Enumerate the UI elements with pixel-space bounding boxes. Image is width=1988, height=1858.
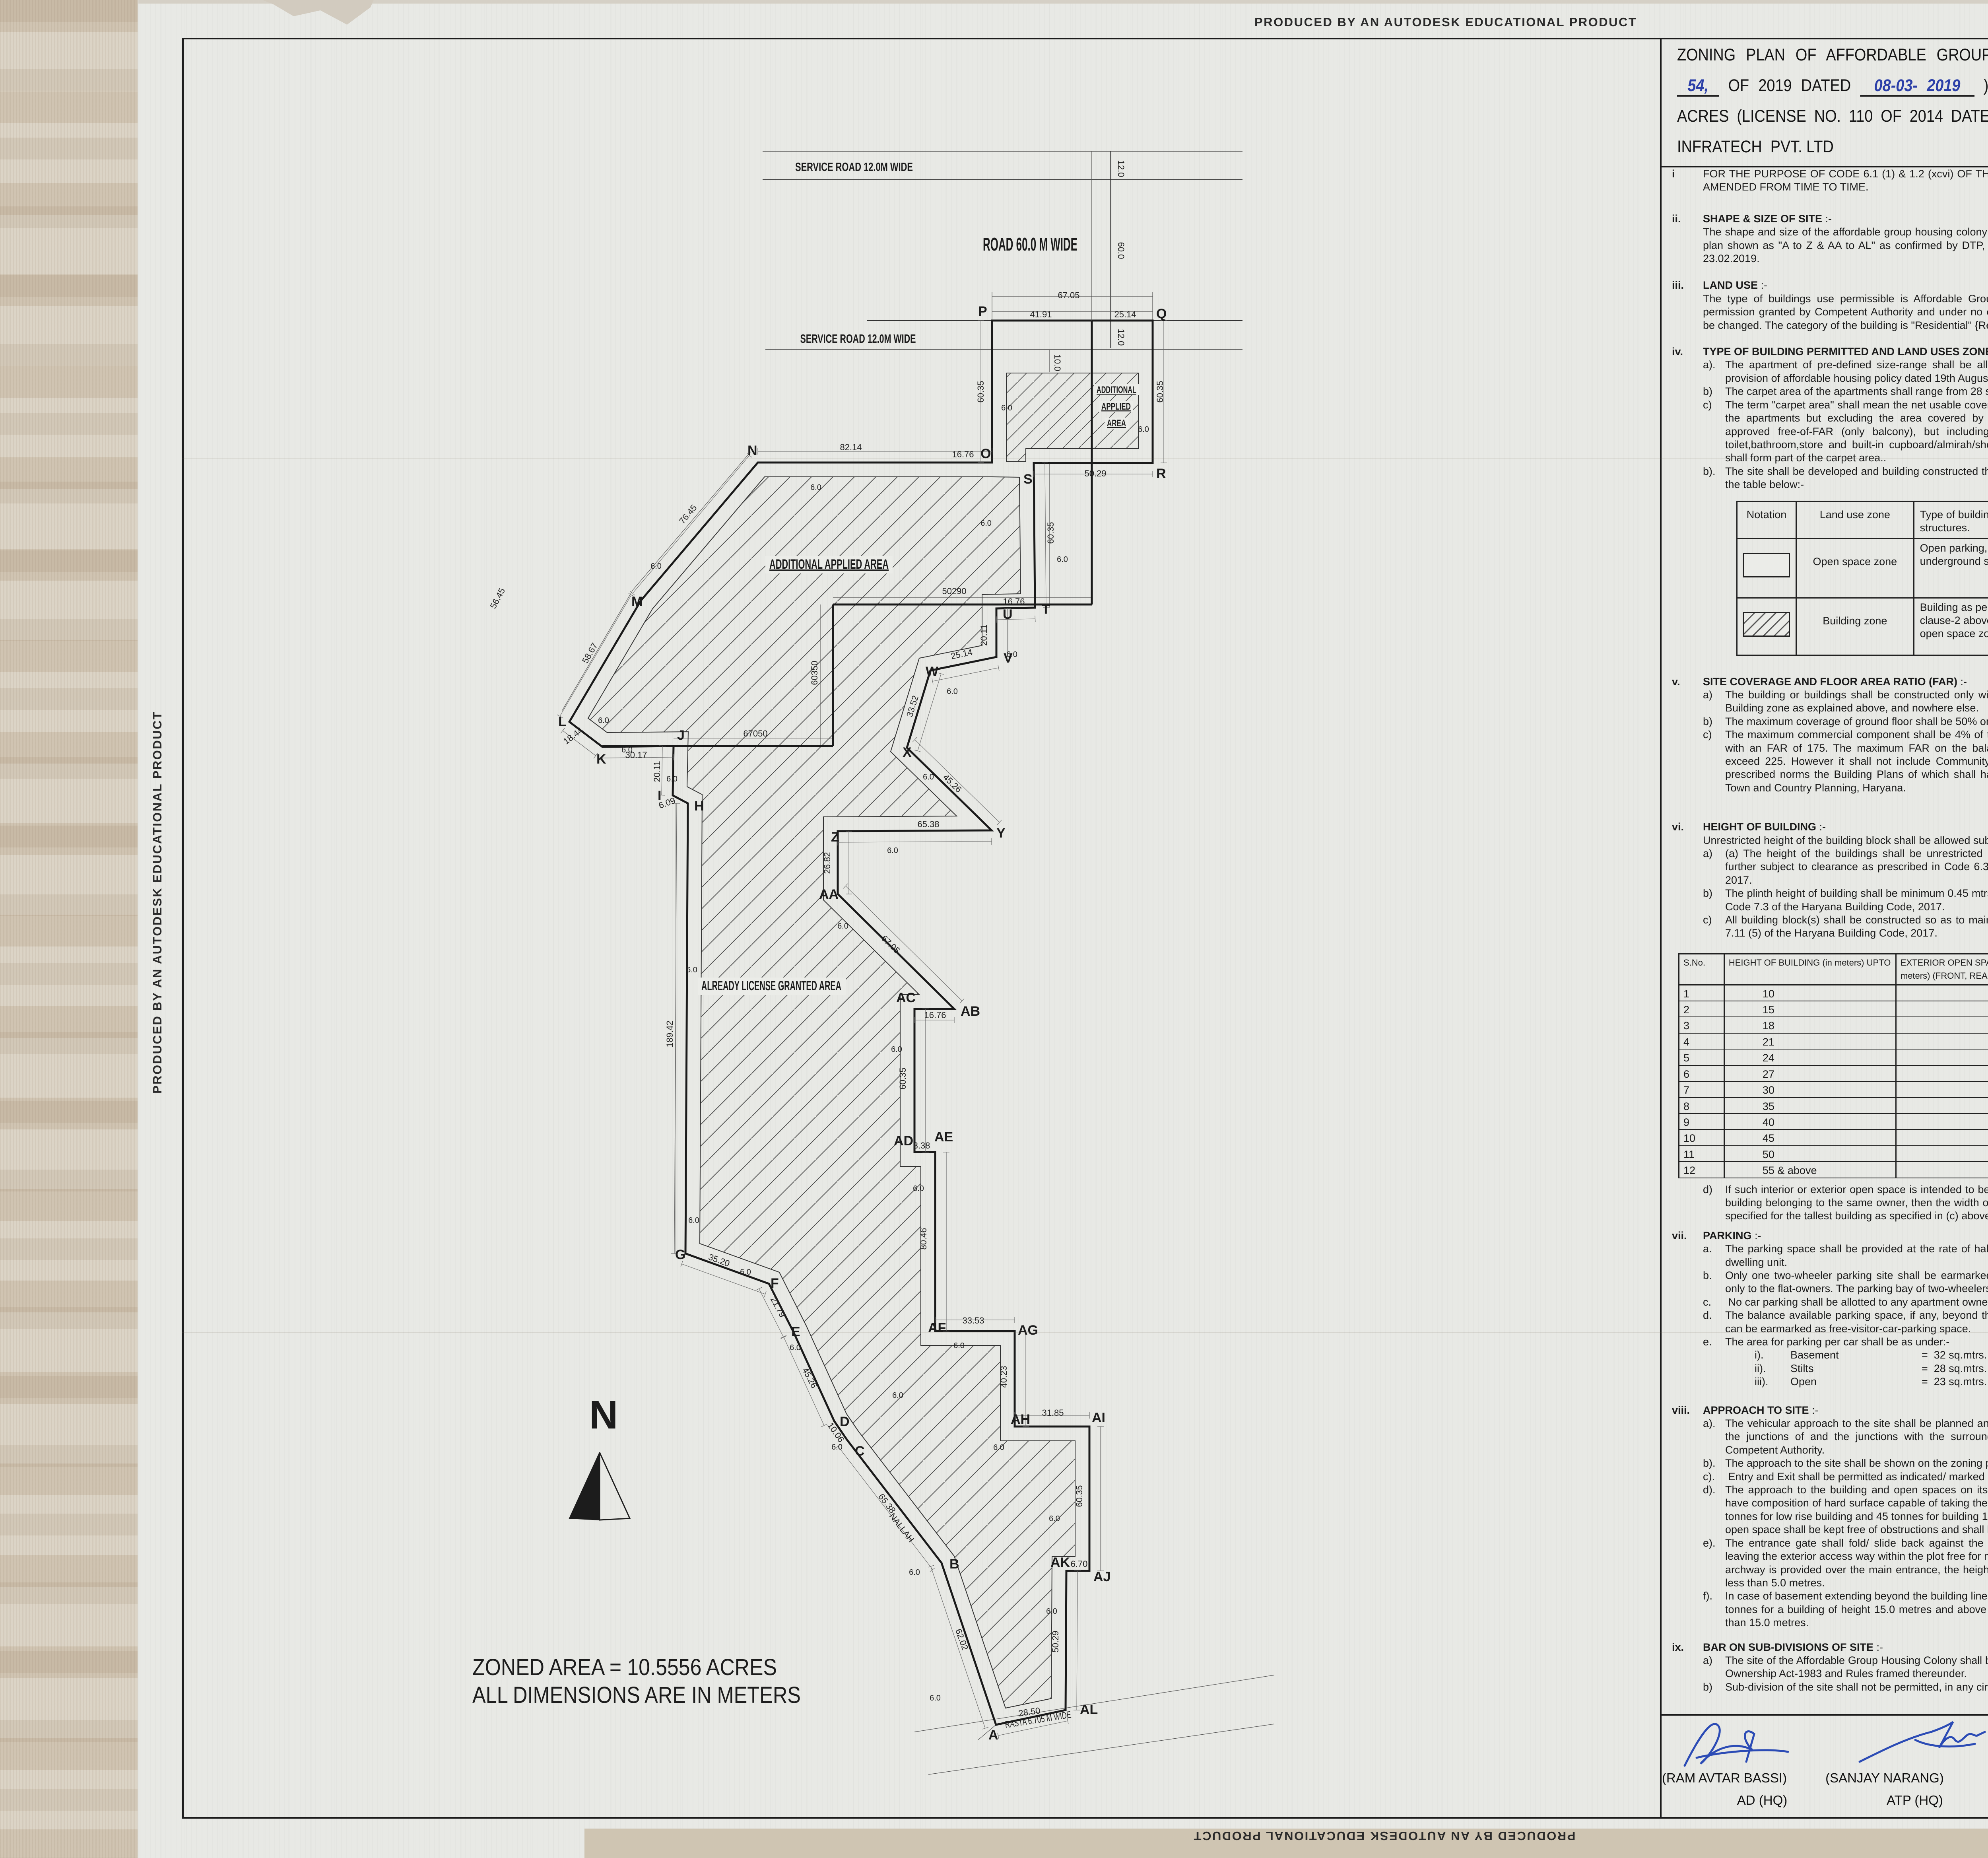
svg-text:6.0: 6.0 bbox=[947, 687, 958, 696]
svg-text:AG: AG bbox=[1018, 1323, 1038, 1338]
svg-text:6.0: 6.0 bbox=[913, 1184, 924, 1193]
svg-text:6.0: 6.0 bbox=[621, 746, 633, 754]
svg-text:6.0: 6.0 bbox=[1138, 425, 1149, 434]
svg-text:6.0: 6.0 bbox=[837, 922, 848, 931]
svg-text:6.0: 6.0 bbox=[688, 1216, 699, 1225]
svg-text:6.0: 6.0 bbox=[650, 562, 662, 571]
svg-text:6.0: 6.0 bbox=[909, 1568, 920, 1577]
svg-text:SERVICE ROAD 12.0M WIDE: SERVICE ROAD 12.0M WIDE bbox=[795, 160, 913, 174]
svg-text:189.42: 189.42 bbox=[665, 1020, 675, 1047]
svg-text:50.29: 50.29 bbox=[1050, 1631, 1060, 1652]
svg-text:AJ: AJ bbox=[1093, 1569, 1110, 1584]
svg-text:31.85: 31.85 bbox=[1042, 1408, 1064, 1418]
svg-text:K: K bbox=[596, 752, 606, 767]
svg-text:AL: AL bbox=[1080, 1702, 1098, 1717]
svg-text:AH: AH bbox=[1011, 1412, 1030, 1427]
svg-text:T: T bbox=[1042, 602, 1050, 617]
svg-text:40.23: 40.23 bbox=[999, 1366, 1009, 1388]
svg-text:6.0: 6.0 bbox=[953, 1341, 965, 1350]
svg-text:AA: AA bbox=[819, 887, 839, 902]
svg-text:AC: AC bbox=[896, 990, 916, 1005]
svg-text:6.0: 6.0 bbox=[891, 1045, 902, 1054]
svg-text:6.0: 6.0 bbox=[1046, 1607, 1057, 1616]
svg-text:ALREADY LICENSE GRANTED AREA: ALREADY LICENSE GRANTED AREA bbox=[701, 978, 841, 993]
svg-text:H: H bbox=[694, 799, 704, 814]
svg-text:O: O bbox=[980, 446, 991, 461]
svg-text:6.0: 6.0 bbox=[831, 1443, 843, 1452]
svg-text:N: N bbox=[589, 1393, 618, 1437]
svg-text:ADDITIONAL: ADDITIONAL bbox=[1097, 385, 1136, 395]
svg-text:L: L bbox=[558, 714, 567, 729]
svg-text:6.0: 6.0 bbox=[993, 1443, 1004, 1452]
svg-text:6.0: 6.0 bbox=[980, 519, 992, 528]
svg-text:65.38: 65.38 bbox=[917, 819, 939, 829]
svg-text:58.67: 58.67 bbox=[580, 641, 600, 665]
svg-text:D: D bbox=[840, 1414, 850, 1429]
svg-text:6.0: 6.0 bbox=[930, 1694, 941, 1703]
svg-text:B: B bbox=[949, 1557, 959, 1572]
svg-text:12.0: 12.0 bbox=[1116, 160, 1126, 177]
svg-text:F: F bbox=[771, 1276, 779, 1291]
svg-text:6.0: 6.0 bbox=[740, 1268, 751, 1277]
svg-text:6.0: 6.0 bbox=[887, 846, 898, 855]
svg-text:Z: Z bbox=[831, 830, 839, 845]
svg-text:8.38: 8.38 bbox=[913, 1141, 930, 1151]
svg-text:67.05: 67.05 bbox=[879, 933, 902, 955]
svg-text:80.46: 80.46 bbox=[918, 1228, 928, 1250]
svg-text:60.0: 60.0 bbox=[1116, 242, 1126, 259]
svg-text:6.0: 6.0 bbox=[1001, 404, 1012, 412]
svg-text:45.26: 45.26 bbox=[800, 1366, 819, 1390]
svg-text:ROAD 60.0 M WIDE: ROAD 60.0 M WIDE bbox=[983, 234, 1077, 255]
svg-text:25.14: 25.14 bbox=[1114, 309, 1136, 319]
svg-text:20.11: 20.11 bbox=[652, 761, 662, 782]
svg-text:33.53: 33.53 bbox=[962, 1316, 984, 1325]
svg-text:NALLAH: NALLAH bbox=[887, 1511, 916, 1544]
svg-text:X: X bbox=[903, 745, 912, 760]
svg-text:APPLIED: APPLIED bbox=[1101, 401, 1131, 412]
svg-text:W: W bbox=[926, 664, 939, 679]
svg-text:82.14: 82.14 bbox=[840, 442, 862, 452]
svg-text:6.0: 6.0 bbox=[598, 716, 609, 725]
svg-text:6.0: 6.0 bbox=[810, 483, 821, 492]
svg-text:10.0: 10.0 bbox=[1052, 354, 1062, 371]
svg-text:N: N bbox=[747, 443, 757, 458]
svg-text:C: C bbox=[855, 1444, 865, 1459]
svg-text:6.0: 6.0 bbox=[1057, 555, 1068, 564]
svg-text:M: M bbox=[631, 594, 643, 609]
svg-text:16.76: 16.76 bbox=[1003, 597, 1025, 606]
svg-text:16.76: 16.76 bbox=[924, 1010, 946, 1020]
svg-text:6.70: 6.70 bbox=[1071, 1559, 1088, 1569]
svg-text:AK: AK bbox=[1050, 1555, 1070, 1570]
svg-text:60.35: 60.35 bbox=[976, 381, 986, 402]
svg-text:P: P bbox=[978, 304, 987, 319]
svg-text:67.05: 67.05 bbox=[1058, 290, 1079, 300]
svg-text:50.29: 50.29 bbox=[1084, 468, 1106, 478]
svg-text:AB: AB bbox=[961, 1004, 980, 1019]
svg-text:ADDITIONAL APPLIED AREA: ADDITIONAL APPLIED AREA bbox=[769, 557, 889, 572]
svg-text:60.35: 60.35 bbox=[1155, 381, 1165, 402]
svg-text:AF: AF bbox=[928, 1320, 946, 1335]
svg-text:Y: Y bbox=[996, 826, 1006, 841]
svg-text:41.91: 41.91 bbox=[1030, 309, 1052, 319]
svg-text:J: J bbox=[677, 728, 685, 743]
svg-text:AREA: AREA bbox=[1107, 418, 1126, 429]
svg-text:6.0: 6.0 bbox=[892, 1391, 903, 1400]
svg-text:AI: AI bbox=[1092, 1410, 1105, 1425]
svg-text:60.35: 60.35 bbox=[898, 1067, 908, 1089]
svg-text:6.0: 6.0 bbox=[686, 966, 697, 974]
svg-text:50290: 50290 bbox=[942, 586, 966, 596]
svg-text:ZONED AREA = 10.5556 ACRES: ZONED AREA = 10.5556 ACRES bbox=[472, 1654, 777, 1680]
svg-text:6.0: 6.0 bbox=[790, 1343, 801, 1352]
svg-text:6.0: 6.0 bbox=[1049, 1514, 1060, 1523]
svg-text:U: U bbox=[1003, 607, 1013, 622]
svg-text:Q: Q bbox=[1156, 306, 1167, 321]
svg-text:ALL DIMENSIONS ARE IN METERS: ALL DIMENSIONS ARE IN METERS bbox=[472, 1682, 801, 1708]
svg-text:SERVICE ROAD 12.0M WIDE: SERVICE ROAD 12.0M WIDE bbox=[800, 332, 916, 346]
svg-text:21.79: 21.79 bbox=[769, 1295, 788, 1319]
svg-text:26.82: 26.82 bbox=[822, 852, 832, 874]
svg-text:R: R bbox=[1156, 466, 1166, 481]
svg-text:AE: AE bbox=[934, 1129, 953, 1145]
svg-text:76.45: 76.45 bbox=[677, 503, 699, 526]
svg-text:60350: 60350 bbox=[810, 661, 819, 685]
svg-text:60.35: 60.35 bbox=[1074, 1485, 1084, 1507]
svg-text:S: S bbox=[1023, 472, 1033, 487]
svg-text:20.11: 20.11 bbox=[979, 624, 989, 645]
svg-text:AD: AD bbox=[894, 1133, 913, 1149]
svg-text:67050: 67050 bbox=[743, 729, 767, 739]
svg-text:60.35: 60.35 bbox=[1046, 522, 1056, 544]
svg-text:12.0: 12.0 bbox=[1116, 329, 1126, 346]
svg-text:56.45: 56.45 bbox=[488, 586, 507, 610]
svg-text:G: G bbox=[675, 1247, 685, 1262]
svg-text:6.0: 6.0 bbox=[923, 773, 934, 781]
svg-text:6.0: 6.0 bbox=[666, 775, 678, 783]
svg-text:6.0: 6.0 bbox=[1006, 650, 1017, 659]
svg-text:A: A bbox=[988, 1728, 998, 1743]
